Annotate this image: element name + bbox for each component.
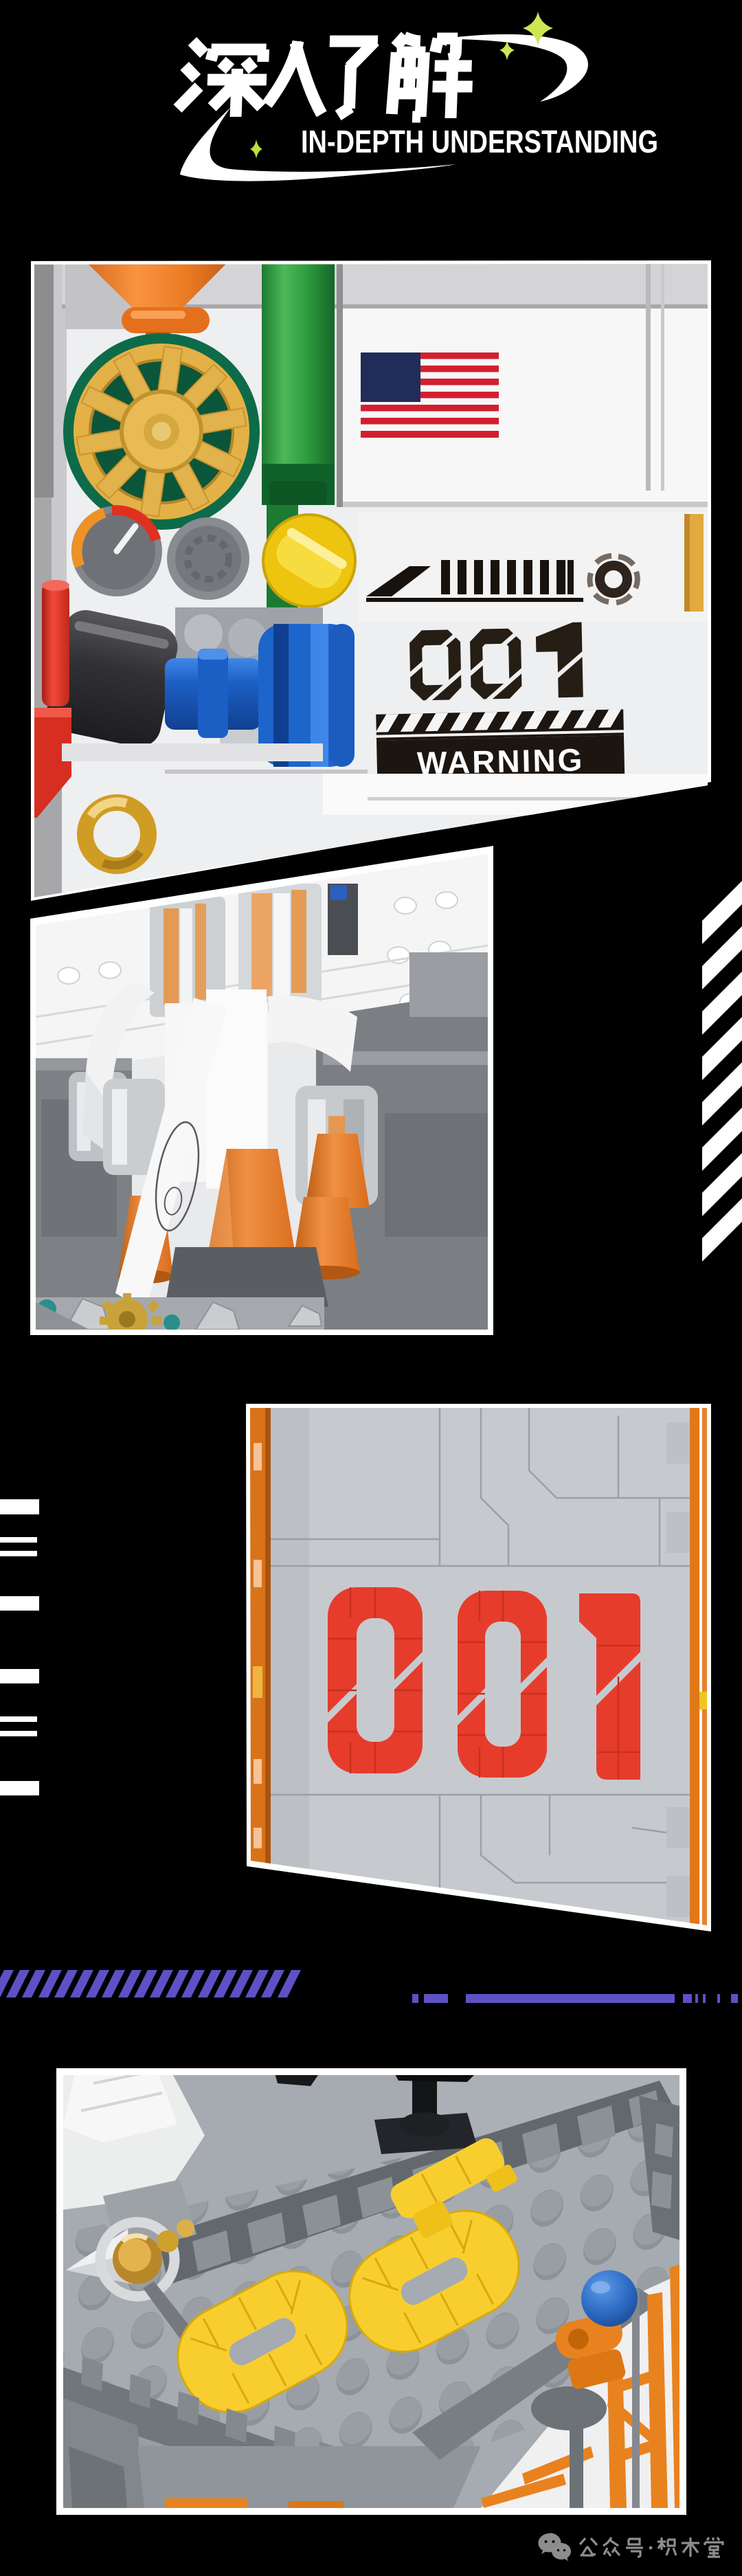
svg-text:IN-DEPTH UNDERSTANDING: IN-DEPTH UNDERSTANDING	[301, 124, 658, 159]
